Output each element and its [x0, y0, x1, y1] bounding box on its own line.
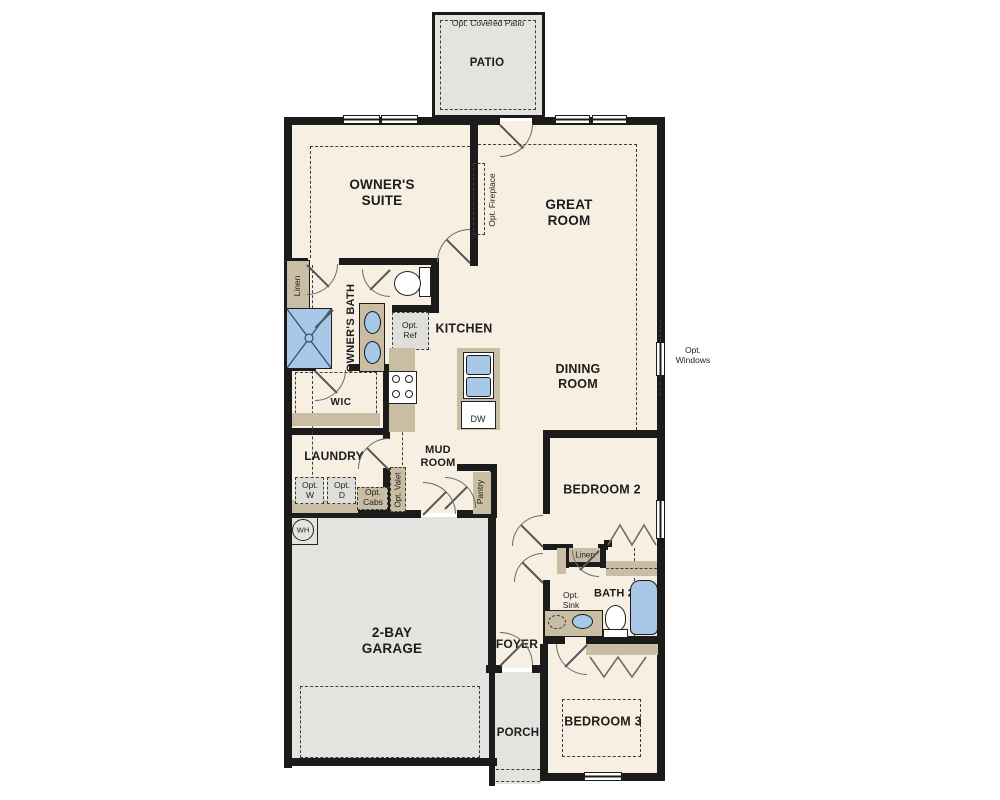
garage-label: 2-BAY GARAGE [345, 625, 440, 657]
stove-burner-2 [405, 375, 413, 383]
mud-room-label: MUD ROOM [413, 444, 463, 470]
opt-valet-label: Opt. Valet [393, 473, 402, 508]
bedroom2-label: BEDROOM 2 [563, 483, 641, 498]
opt-dryer-label: Opt. D [330, 481, 354, 501]
floor-plan: Opt. Covered Patio PATIO Opt. Windows [0, 0, 1000, 800]
owners-bath-label: OWNER'S BATH [345, 284, 357, 373]
bath2-toilet-bowl [605, 605, 626, 631]
wall-bedroom3-west [540, 644, 548, 781]
wall-suite-bottom-b [339, 258, 436, 265]
porch-step-dash-2 [496, 781, 540, 782]
laundry-label: LAUNDRY [304, 449, 364, 463]
opt-window-dash-bottom [660, 376, 661, 396]
opt-sink-label: Opt. Sink [556, 591, 586, 611]
window-great-room-2 [592, 115, 627, 124]
opt-cabs-label: Opt. Cabs [359, 488, 387, 508]
linen-owners-label: Linen [293, 276, 303, 297]
stove-burner-3 [392, 390, 400, 398]
suite-ceiling-dash-top [310, 146, 470, 147]
owners-sink-1 [364, 311, 381, 334]
wall-bath2-bottom-a [543, 636, 565, 644]
wall-porch-left [489, 670, 495, 786]
opt-windows-label: Opt. Windows [667, 346, 719, 366]
window-bedroom3 [584, 772, 622, 781]
wall-toilet-nook [431, 258, 439, 311]
opt-window [656, 342, 665, 376]
opt-covered-patio-label: Opt. Covered Patio [452, 19, 524, 29]
island-sink-bowl-1 [466, 355, 491, 375]
kitchen-label: KITCHEN [436, 322, 493, 337]
bathtub [630, 580, 658, 635]
wic-shelf [292, 413, 380, 426]
bedroom3-label: BEDROOM 3 [564, 715, 642, 730]
bath2-toilet-tank [603, 629, 628, 638]
water-heater-label: WH [297, 527, 310, 536]
bedroom2-closet-shelf-dash [606, 568, 657, 569]
owners-sink-2 [364, 341, 381, 364]
porch-step-dash-1 [496, 769, 540, 770]
wall-dining-bottom [543, 430, 665, 438]
stove-burner-1 [392, 375, 400, 383]
window-owners-suite-1 [343, 115, 380, 124]
patio-label: PATIO [470, 57, 504, 71]
wic-label: WIC [331, 397, 352, 409]
owners-suite-label: OWNER'S SUITE [332, 177, 432, 209]
wall-garage-bottom [284, 758, 497, 766]
bath2-sink [572, 614, 593, 629]
owners-toilet-bowl [394, 271, 421, 296]
wall-laundry-top [284, 428, 385, 435]
bedroom3-closet-bifold-icon [590, 656, 646, 678]
wall-bedroom2-west [543, 430, 550, 514]
bath2-label: BATH 2 [593, 587, 635, 600]
opt-sink-symbol [548, 615, 566, 629]
bedroom2-closet-bifold-icon [608, 524, 656, 546]
dishwasher-label: DW [471, 414, 486, 424]
wall-right [657, 117, 665, 781]
wall-left [284, 117, 292, 768]
greatroom-ceiling-dash-right [636, 144, 637, 430]
bedroom3-closet-shelf [586, 644, 658, 655]
window-bedroom2 [656, 500, 665, 539]
suite-ceiling-dash-left [310, 146, 311, 258]
bath2-nook-shelf [557, 548, 566, 574]
window-owners-suite-2 [381, 115, 418, 124]
dining-room-label: DINING ROOM [543, 362, 613, 392]
opt-washer-label: Opt. W [298, 481, 322, 501]
opt-fireplace-label: Opt. Fireplace [488, 173, 498, 226]
porch-label: PORCH [497, 727, 540, 741]
garage-door-dash [300, 686, 480, 758]
pantry-label: Pantry [476, 480, 486, 505]
great-room-label: GREAT ROOM [534, 197, 604, 229]
opt-window-dash-top [660, 320, 661, 342]
opt-ref-label: Opt. Ref [396, 321, 424, 341]
wall-garage-foyer [488, 510, 496, 673]
island-sink-bowl-2 [466, 377, 491, 397]
opt-fireplace-dash [473, 163, 485, 235]
window-great-room-1 [555, 115, 590, 124]
stove-burner-4 [405, 390, 413, 398]
